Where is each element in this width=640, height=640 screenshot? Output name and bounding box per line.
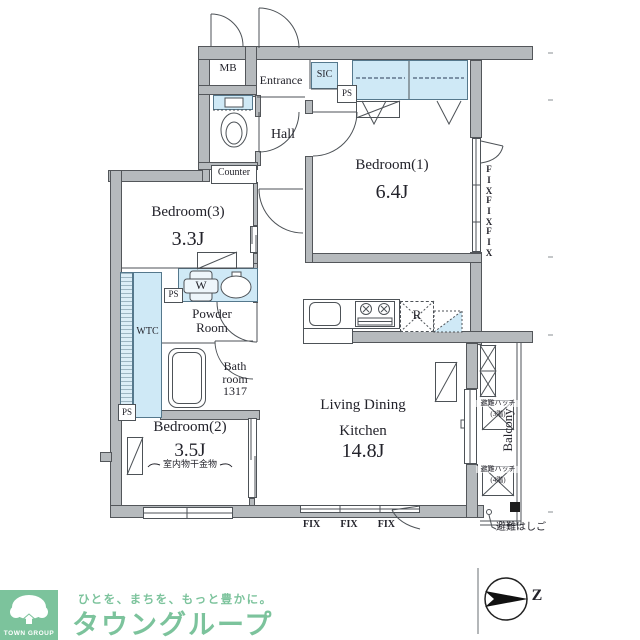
wall: [198, 85, 257, 95]
bedroom2-window: [143, 507, 233, 519]
powder-room-label: PowderRoom: [178, 307, 246, 334]
escape-ladder-leader: [487, 510, 497, 530]
ldk-door-arc: [259, 189, 303, 233]
kitchen-corner-outline: [434, 311, 462, 332]
fix-window-bottom: [300, 505, 420, 513]
kitchen-corner-counter: [434, 311, 462, 332]
fridge-label: R: [400, 308, 434, 322]
logo-text: TOWN GROUP: [0, 630, 58, 637]
pillar-ldk: [435, 362, 457, 402]
footer-company: タウングループ: [72, 603, 273, 640]
fix-label-vertical: FIX: [484, 226, 494, 256]
bedroom3-name: Bedroom(3): [126, 205, 250, 221]
washer-label: W: [190, 279, 212, 292]
fix-swing-pane: [481, 141, 503, 163]
wall: [255, 95, 261, 117]
walkthrough-closet: [133, 272, 162, 418]
bathtub-inner: [172, 352, 202, 404]
compass-north-label: Z: [527, 588, 547, 605]
bedroom3-sliding-door: [250, 226, 258, 253]
wall: [253, 182, 258, 226]
sic-label: SIC: [311, 70, 338, 81]
bedroom1-name: Bedroom(1): [330, 158, 454, 174]
wall: [108, 170, 203, 182]
hall-label: Hall: [261, 128, 305, 143]
wall: [305, 156, 313, 263]
fix-window-right: [472, 138, 481, 252]
wall: [307, 253, 482, 263]
wall: [352, 331, 533, 343]
shelf-bedroom1: [356, 101, 400, 118]
fix-label: FIX: [378, 519, 395, 530]
ps-label: PS: [337, 89, 357, 98]
bedroom2-area: 3.5J: [130, 441, 250, 461]
hatch-lower-floor: (4階): [484, 477, 512, 484]
bathroom-label: Bathroom1317: [212, 360, 258, 398]
bedroom3-area: 3.3J: [126, 229, 250, 250]
bedroom1-door-arc: [313, 112, 357, 156]
ldk-area: 14.8J: [298, 441, 428, 462]
kitchen-sink: [309, 302, 341, 326]
hatch-lower-label: 避難ハッチ: [476, 466, 520, 473]
bedroom1-area: 6.4J: [330, 182, 454, 203]
compass-icon: [478, 568, 528, 634]
stove: [355, 301, 395, 327]
floorplan-canvas: MB Entrance SIC PS PS PS Hall Counter Be…: [0, 0, 640, 640]
bedroom2-name: Bedroom(2): [130, 420, 250, 436]
fix-label-vertical: FIX: [484, 195, 494, 225]
fix-label: FIX: [340, 519, 357, 530]
wall: [470, 60, 482, 138]
logo-square: TOWN GROUP: [0, 590, 58, 640]
mb-door-arc: [211, 14, 243, 46]
hatch-upper-label: 避難ハッチ: [476, 400, 520, 407]
hatch-upper-floor: (3階): [484, 411, 512, 418]
shelf-bedroom3: [197, 252, 237, 269]
bedroom2-note: 室内物干金物: [126, 460, 254, 469]
kitchen-front-panel: [303, 328, 353, 344]
ps-label: PS: [118, 408, 136, 417]
note-flourish: [219, 461, 233, 469]
balcony-drain: [510, 502, 520, 512]
wall: [100, 452, 112, 462]
fix-label: FIX: [303, 519, 320, 530]
toilet-bowl: [221, 113, 247, 147]
counter-label: Counter: [211, 168, 257, 179]
louver-closet: [120, 272, 133, 418]
fix-label-vertical: FIX: [484, 164, 494, 194]
fix-labels-bottom: FIX FIX FIX: [303, 519, 395, 530]
mb-label: MB: [210, 63, 246, 75]
wtc-label: WTC: [132, 327, 163, 338]
wall: [249, 498, 255, 506]
survey-ticks: [548, 53, 553, 512]
escape-ladder-label: 避難はしご: [496, 523, 566, 534]
ps-label: PS: [164, 290, 183, 299]
entrance-label: Entrance: [254, 74, 308, 87]
balcony-xbox: [480, 345, 496, 397]
toilet-tank-shelf: [213, 95, 253, 110]
wall: [466, 343, 478, 389]
note-flourish: [147, 461, 161, 469]
wall: [305, 100, 313, 114]
bedroom1-closet: [352, 60, 468, 100]
entrance-door-arc: [259, 8, 299, 48]
ldk-name: Living DiningKitchen: [298, 393, 428, 444]
